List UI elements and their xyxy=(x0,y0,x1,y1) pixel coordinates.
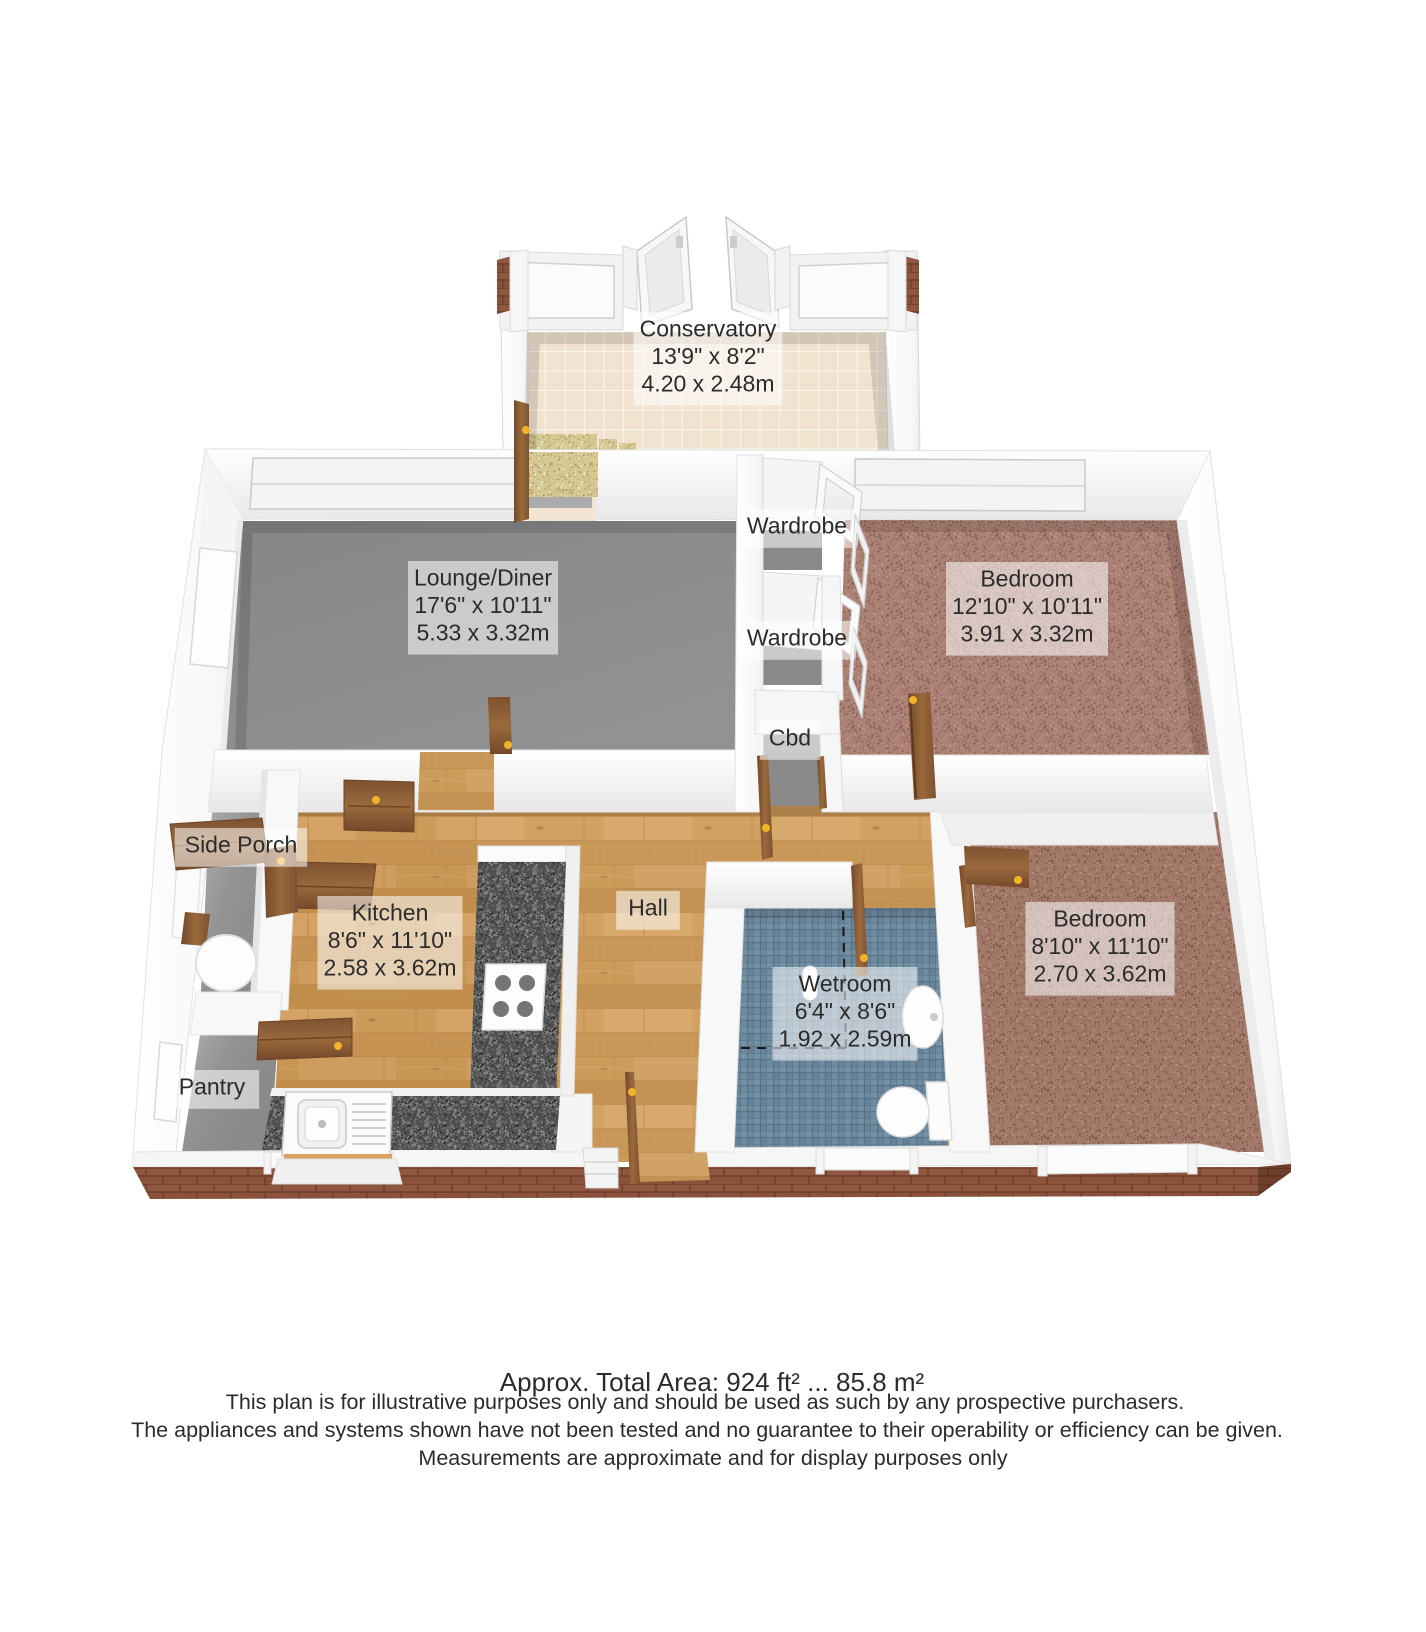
svg-text:Cbd: Cbd xyxy=(769,725,811,751)
svg-text:Wardrobe: Wardrobe xyxy=(747,625,847,651)
svg-text:This plan is for illustrative: This plan is for illustrative purposes o… xyxy=(226,1390,1184,1414)
svg-text:8'10" x 11'10": 8'10" x 11'10" xyxy=(1031,933,1168,959)
svg-text:Kitchen: Kitchen xyxy=(352,900,429,926)
svg-text:6'4" x 8'6": 6'4" x 8'6" xyxy=(795,998,896,1024)
svg-text:Side Porch: Side Porch xyxy=(185,832,298,858)
svg-text:5.33 x 3.32m: 5.33 x 3.32m xyxy=(417,619,550,645)
svg-text:13'9" x 8'2": 13'9" x 8'2" xyxy=(651,343,764,369)
svg-text:Conservatory: Conservatory xyxy=(640,316,777,342)
svg-text:12'10" x 10'11": 12'10" x 10'11" xyxy=(952,593,1102,619)
svg-text:2.70 x 3.62m: 2.70 x 3.62m xyxy=(1034,960,1167,986)
svg-text:2.58 x 3.62m: 2.58 x 3.62m xyxy=(324,954,457,980)
svg-text:Hall: Hall xyxy=(628,895,668,921)
svg-text:1.92 x 2.59m: 1.92 x 2.59m xyxy=(779,1025,912,1051)
svg-text:Wardrobe: Wardrobe xyxy=(747,513,847,539)
svg-text:8'6" x 11'10": 8'6" x 11'10" xyxy=(328,927,452,953)
svg-text:Lounge/Diner: Lounge/Diner xyxy=(414,565,552,591)
svg-text:The appliances and systems sho: The appliances and systems shown have no… xyxy=(131,1418,1283,1442)
svg-text:4.20 x 2.48m: 4.20 x 2.48m xyxy=(642,370,775,396)
svg-text:Wetroom: Wetroom xyxy=(799,971,892,997)
svg-text:Bedroom: Bedroom xyxy=(1053,906,1146,932)
svg-text:3.91 x 3.32m: 3.91 x 3.32m xyxy=(961,620,1094,646)
svg-text:Bedroom: Bedroom xyxy=(980,566,1073,592)
svg-text:17'6" x 10'11": 17'6" x 10'11" xyxy=(414,592,551,618)
svg-text:Measurements are approximate a: Measurements are approximate and for dis… xyxy=(418,1446,1007,1470)
svg-text:Pantry: Pantry xyxy=(179,1074,246,1100)
